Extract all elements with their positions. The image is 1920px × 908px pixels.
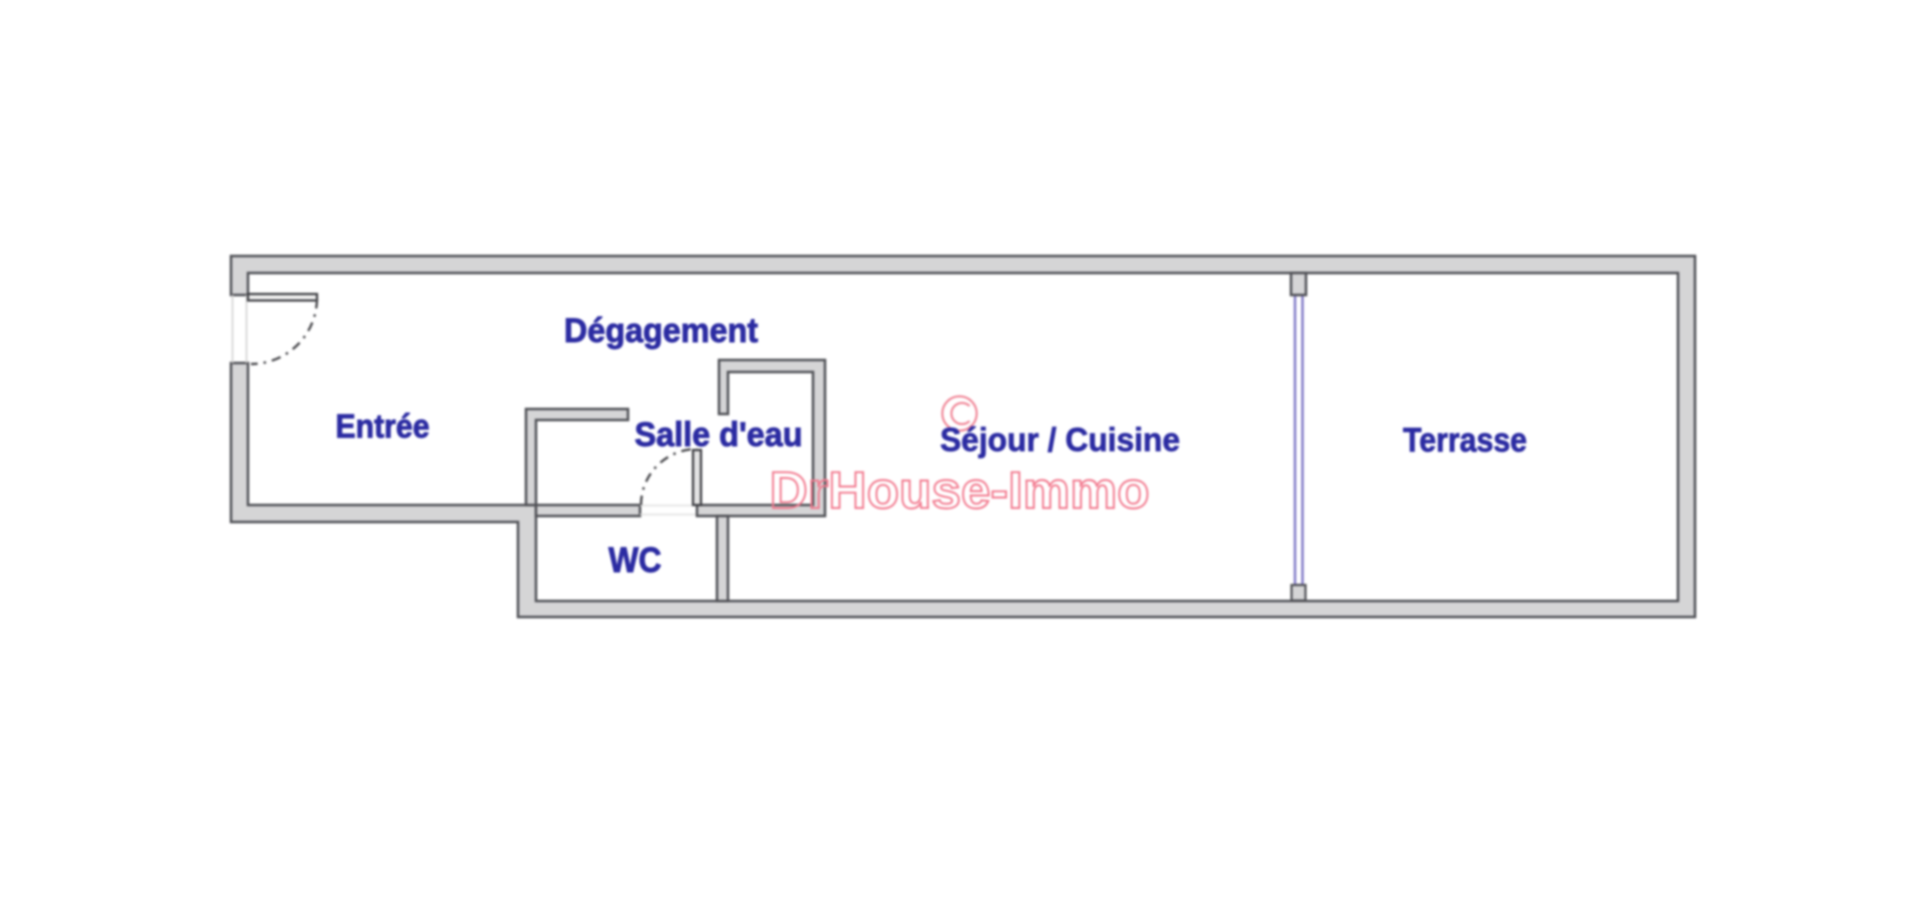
svg-text:DrHouse-Immo: DrHouse-Immo bbox=[770, 462, 1150, 520]
svg-text:Dégagement: Dégagement bbox=[564, 312, 758, 350]
svg-text:Séjour / Cuisine: Séjour / Cuisine bbox=[940, 421, 1180, 458]
svg-text:Salle d'eau: Salle d'eau bbox=[635, 416, 803, 454]
svg-text:Terrasse: Terrasse bbox=[1403, 422, 1527, 460]
svg-text:WC: WC bbox=[609, 541, 662, 580]
svg-text:Entrée: Entrée bbox=[336, 408, 430, 445]
